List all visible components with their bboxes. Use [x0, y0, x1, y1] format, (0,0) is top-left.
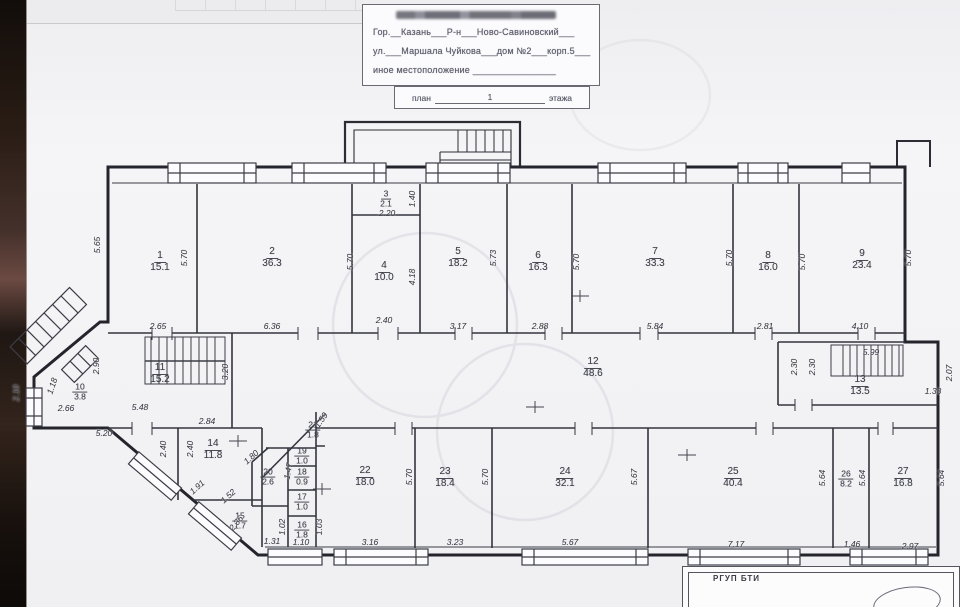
- bti-stamp-text: РГУП БТИ: [713, 574, 760, 583]
- illegible-header-line: [396, 11, 556, 19]
- watermark: [333, 40, 710, 520]
- floor-word: этажа: [549, 93, 572, 103]
- entrance-vestibule: [345, 122, 520, 167]
- door-ticks: [132, 327, 893, 435]
- survey-cross-marks: [229, 290, 696, 495]
- window-openings-diagonal: [128, 452, 241, 550]
- other-location-line: иное местоположение ________________: [373, 65, 595, 75]
- plan-word: план: [412, 93, 431, 103]
- room13-stairs-icon: [831, 345, 903, 376]
- bti-stamp-box: РГУП БТИ: [682, 566, 960, 607]
- interior-walls: [108, 184, 938, 548]
- plan-floor-caption: план 1 этажа: [394, 86, 590, 109]
- window-openings-bottom: [268, 549, 928, 565]
- floor-number: 1: [435, 92, 545, 104]
- title-block: Гор.__Казань___Р-н___Ново-Савиновский___…: [362, 4, 600, 86]
- address-street-line: ул.___Маршала Чуйкова___дом №2___корп.5_…: [373, 46, 595, 56]
- stairwell-stairs-icon: [145, 337, 225, 384]
- top-right-notch: [897, 141, 930, 167]
- address-city-line: Гор.__Казань___Р-н___Ново-Савиновский___: [373, 27, 595, 37]
- window-opening-left: [26, 388, 42, 426]
- floor-plan-photo: 115.1236.332.1410.0518.2616.3733.3816.09…: [0, 0, 960, 607]
